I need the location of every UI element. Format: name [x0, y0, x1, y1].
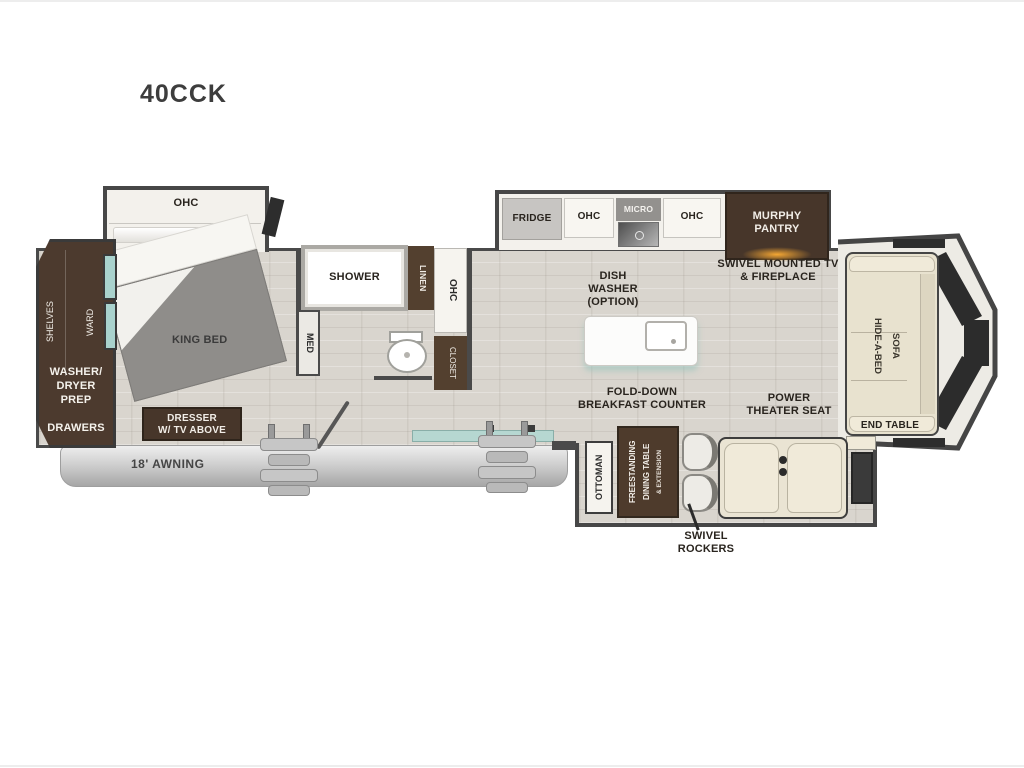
bath-wall-right	[467, 248, 472, 390]
kitchen-slide: FRIDGE OHC MICRO OHC MURPHY PANTRY	[495, 190, 831, 250]
dining-label-1: FREESTANDING	[628, 428, 640, 516]
island-sink	[645, 321, 687, 351]
step-tread	[486, 482, 528, 493]
theater-seatback-left	[724, 443, 779, 513]
med-cabinet: MED	[297, 310, 320, 376]
med-label: MED	[302, 312, 315, 374]
fridge: FRIDGE	[502, 198, 562, 240]
fridge-label: FRIDGE	[503, 213, 561, 225]
dining-table: FREESTANDING DINING TABLE & EXTENSION	[617, 426, 679, 518]
washer-dryer-label: WASHER/ DRYER PREP	[39, 366, 113, 407]
floorplan: OHC FRIDGE OHC MICRO OHC MURPHY PANTRY	[0, 0, 1024, 768]
ohc-cabinet-left: OHC	[564, 198, 614, 238]
dining-label-3: & EXTENSION	[656, 428, 666, 516]
ottoman: OTTOMAN	[585, 441, 613, 514]
entry-steps-2	[478, 421, 536, 499]
sink-drain	[671, 339, 676, 344]
end-table-dark	[851, 452, 873, 504]
sofa-label-1: HIDE-A-BED	[869, 274, 883, 418]
ward-label: WARD	[85, 276, 99, 368]
cupholder-1	[779, 456, 787, 464]
wall-stub	[552, 441, 576, 450]
swivel-chair-1	[682, 433, 718, 471]
toilet-flush	[404, 352, 410, 358]
vanity-line	[374, 376, 432, 380]
ohc-cabinet-right: OHC	[663, 198, 721, 238]
bath-closet-label: CLOSET	[443, 336, 457, 390]
dishwasher-label: DISH WASHER (OPTION)	[558, 270, 668, 309]
ward-door-lower	[104, 302, 117, 350]
dining-label-2: DINING TABLE	[642, 428, 654, 516]
dresser: DRESSER W/ TV ABOVE	[142, 407, 242, 441]
closet-divider	[65, 250, 66, 376]
linen-label: LINEN	[414, 246, 428, 310]
range-burner	[635, 231, 644, 240]
theater-seatback-right	[787, 443, 842, 513]
shower-label: SHOWER	[305, 271, 404, 284]
step-tread	[260, 438, 318, 451]
bath-closet-cabinet: CLOSET	[434, 336, 467, 390]
step-tread	[486, 451, 528, 463]
floorplan-page: 40CCK OHC FRIDGE OHC MI	[0, 0, 1024, 768]
toilet-bowl	[387, 339, 427, 373]
range	[618, 222, 659, 247]
step-tread	[478, 435, 536, 448]
entry-steps-1	[260, 424, 318, 496]
swivel-rockers-label: SWIVEL ROCKERS	[656, 530, 756, 556]
king-bed-label: KING BED	[122, 334, 278, 347]
ohc-left-label: OHC	[565, 211, 613, 223]
ottoman-label: OTTOMAN	[594, 443, 607, 512]
sofa-back	[920, 274, 935, 414]
microwave: MICRO	[616, 198, 661, 221]
ward-door-upper	[103, 254, 117, 300]
end-table-label: END TABLE	[850, 420, 930, 432]
shelves-label: SHELVES	[45, 270, 59, 374]
theater-label: POWER THEATER SEAT	[724, 392, 854, 418]
kitchen-island	[584, 316, 698, 366]
cupholder-2	[779, 468, 787, 476]
dresser-label: DRESSER W/ TV ABOVE	[144, 413, 240, 437]
ohc-right-label: OHC	[664, 211, 720, 223]
step-tread	[478, 466, 536, 479]
rear-window-bottom	[893, 438, 945, 447]
sofa-label-2: SOFA	[887, 274, 901, 418]
step-tread	[268, 485, 310, 496]
theater-seat	[718, 437, 848, 519]
step-tread	[268, 454, 310, 466]
tv-fireplace-label: SWIVEL MOUNTED TV & FIREPLACE	[688, 258, 868, 284]
rear-window-top	[893, 239, 945, 248]
micro-label: MICRO	[616, 204, 661, 214]
linen-cabinet: LINEN	[408, 246, 434, 310]
bedroom-ohc-label: OHC	[107, 197, 265, 210]
drawers-label: DRAWERS	[39, 422, 113, 435]
bath-ohc-label: OHC	[444, 249, 458, 332]
murphy-pantry-label: MURPHY PANTRY	[727, 210, 827, 236]
step-tread	[260, 469, 318, 482]
breakfast-label: FOLD-DOWN BREAKFAST COUNTER	[552, 386, 732, 412]
awning-label: 18' AWNING	[131, 457, 204, 471]
shower: SHOWER	[301, 245, 408, 311]
bath-ohc-cabinet: OHC	[434, 248, 467, 333]
end-table-box	[846, 436, 876, 450]
